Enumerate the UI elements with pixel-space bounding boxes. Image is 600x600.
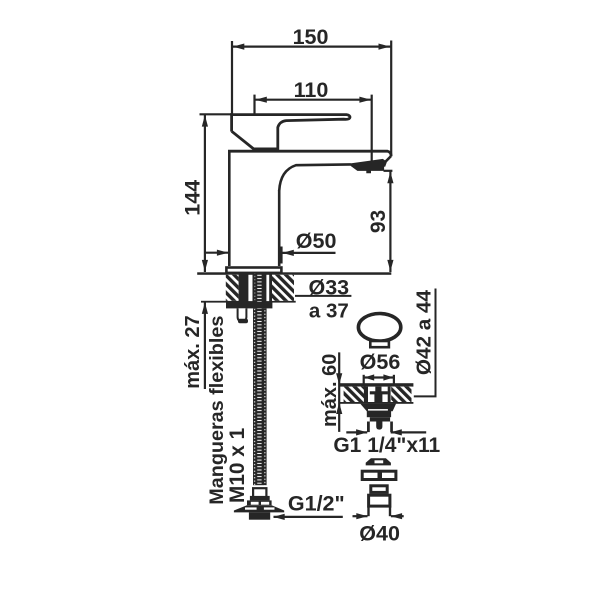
svg-text:110: 110 [294,78,329,102]
svg-text:G1/2": G1/2" [288,492,345,516]
svg-text:M10 x 1: M10 x 1 [226,428,249,503]
svg-text:máx. 27: máx. 27 [182,315,204,388]
svg-text:Ø33: Ø33 [308,276,349,300]
svg-text:150: 150 [293,25,329,49]
svg-text:G1 1/4"x11: G1 1/4"x11 [333,434,440,457]
svg-text:a 37: a 37 [309,299,349,322]
svg-text:Ø56: Ø56 [360,350,401,374]
svg-text:máx. 60: máx. 60 [319,354,341,427]
svg-text:Ø50: Ø50 [296,229,337,253]
svg-text:144: 144 [181,180,205,216]
svg-text:Mangueras flexibles: Mangueras flexibles [206,316,228,505]
svg-text:Ø40: Ø40 [359,521,400,545]
svg-text:Ø42 a 44: Ø42 a 44 [412,289,435,375]
svg-text:93: 93 [367,210,390,233]
